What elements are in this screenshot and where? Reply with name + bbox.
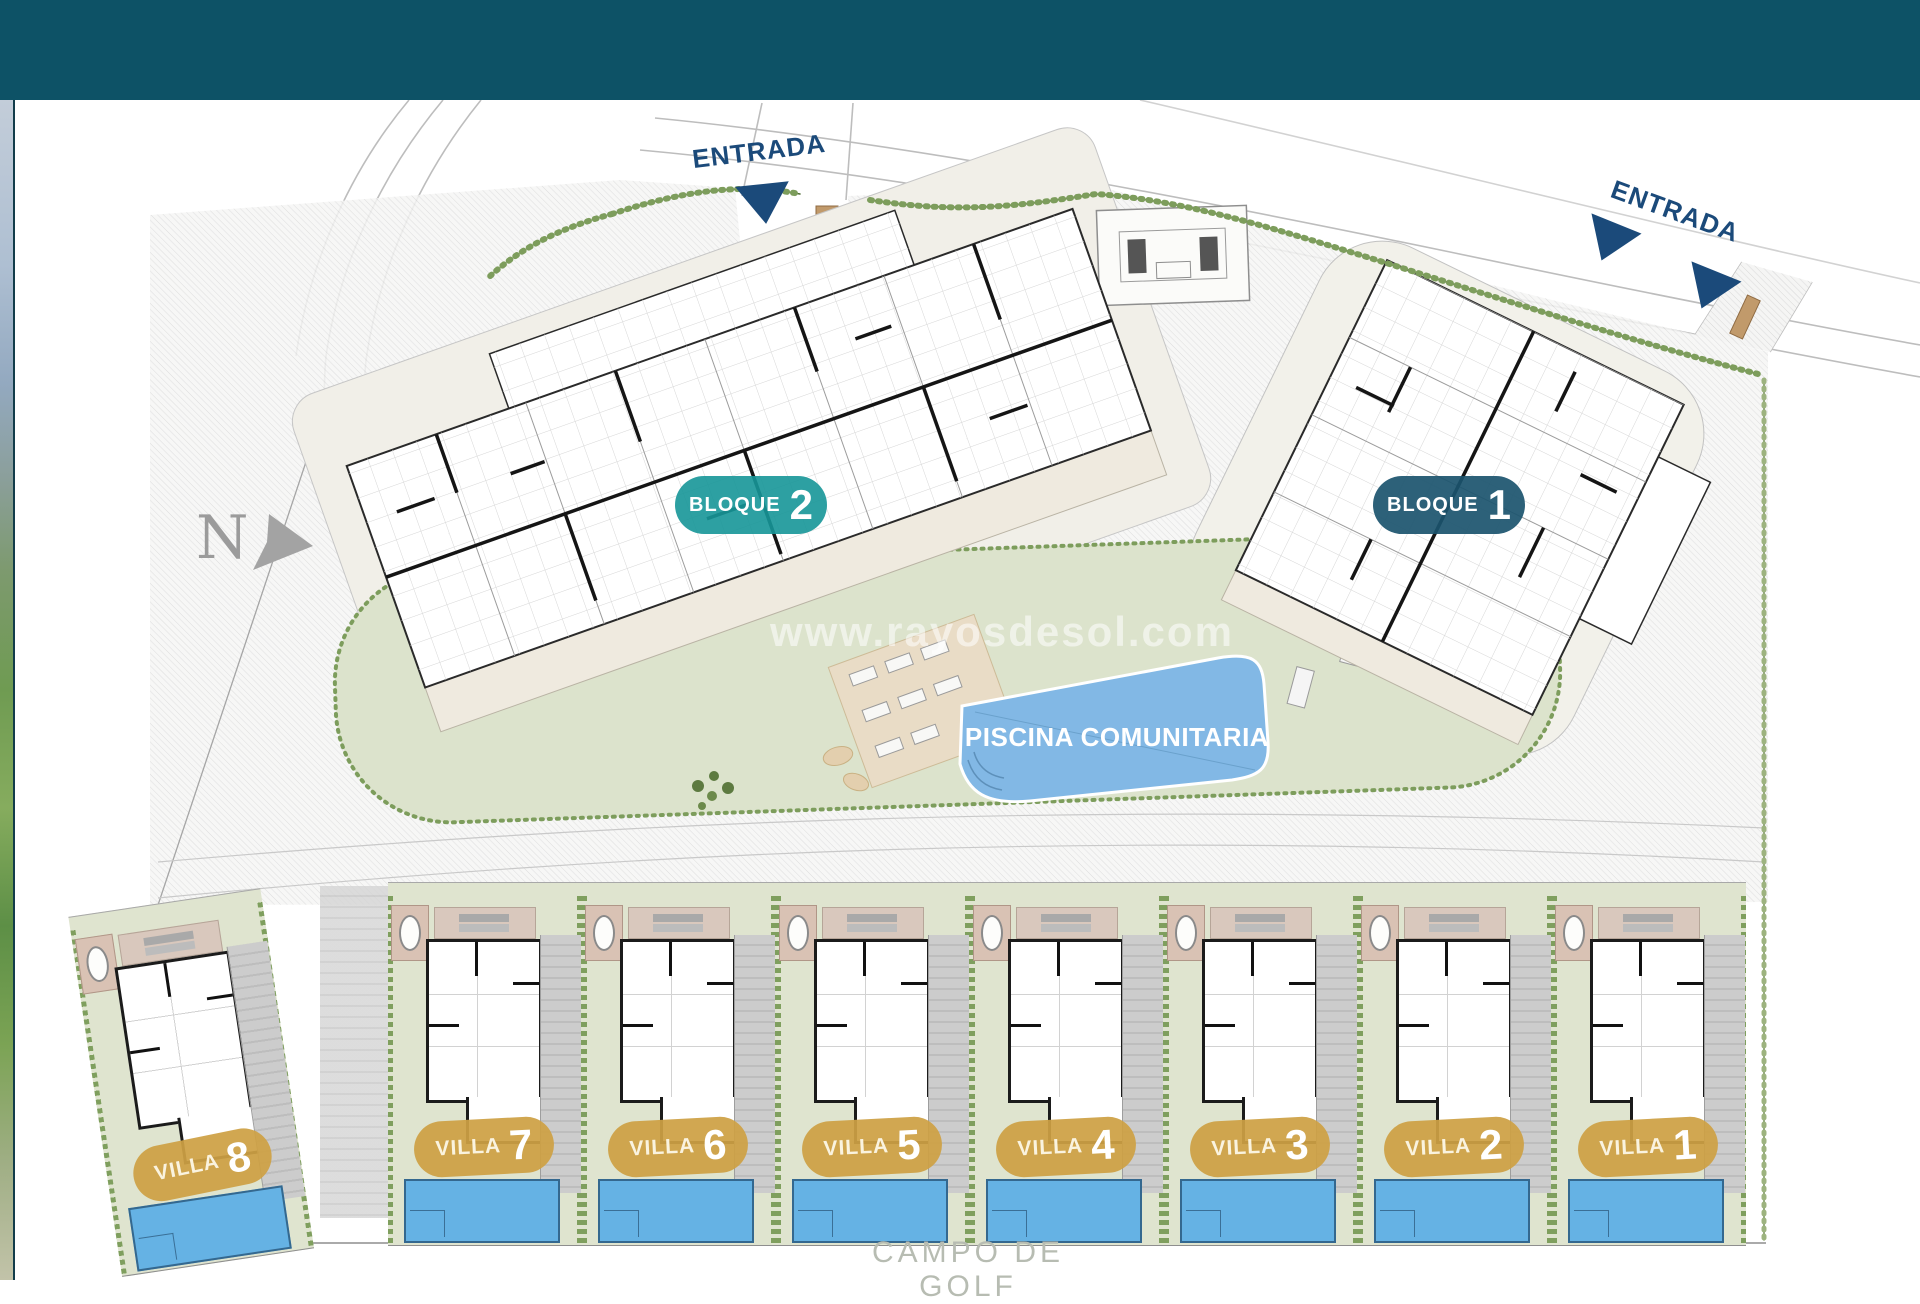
- tub-icon: [1175, 915, 1197, 951]
- bloque-1-badge[interactable]: BLOQUE 1: [1373, 476, 1525, 534]
- villa-floorplan: [426, 939, 542, 1103]
- watermark: www.rayosdesol.com: [770, 608, 1234, 656]
- wall: [669, 942, 672, 976]
- villa-pool: [598, 1179, 754, 1243]
- villa-badge-number: 7: [508, 1123, 534, 1166]
- villa-badge-number: 4: [1090, 1123, 1116, 1166]
- tub-icon: [399, 915, 421, 951]
- villa-terrace-pad: [1167, 905, 1205, 961]
- wall: [1011, 1024, 1041, 1027]
- villa-badge-number: 3: [1284, 1123, 1310, 1166]
- bloque-badge-label: BLOQUE: [1387, 494, 1479, 517]
- villa-badge[interactable]: VILLA 4: [995, 1115, 1138, 1178]
- tub-icon: [1369, 915, 1391, 951]
- villa-badge-number: 6: [702, 1123, 728, 1166]
- villa-terrace-pad: [973, 905, 1011, 961]
- villa-terrace: [1210, 907, 1312, 939]
- wall: [623, 1024, 653, 1027]
- bloque-2-badge[interactable]: BLOQUE 2: [675, 476, 827, 534]
- pool-steps: [1186, 1210, 1221, 1237]
- villa-pool: [792, 1179, 948, 1243]
- villa-badge[interactable]: VILLA 1: [1577, 1115, 1720, 1178]
- tub-icon: [84, 945, 111, 984]
- villa-badge[interactable]: VILLA 6: [607, 1115, 750, 1178]
- wall: [1677, 982, 1703, 985]
- villa-terrace: [434, 907, 536, 939]
- villa-badge-number: 1: [1672, 1123, 1698, 1166]
- villa-pool: [1180, 1179, 1336, 1243]
- villa-badge-label: VILLA: [153, 1150, 222, 1187]
- pool-steps: [1380, 1210, 1415, 1237]
- terrace-furniture: [1429, 914, 1479, 922]
- wall: [1445, 942, 1448, 976]
- villa-badge[interactable]: VILLA 2: [1383, 1115, 1526, 1178]
- bloque-badge-number: 1: [1488, 484, 1511, 526]
- villa-badge-label: VILLA: [1405, 1134, 1472, 1161]
- villa-floorplan: [1202, 939, 1318, 1103]
- villa-plot-7: VILLA 7: [388, 882, 582, 1246]
- villa-floorplan: [1590, 939, 1706, 1103]
- villa-floorplan: [620, 939, 736, 1103]
- tub-icon: [981, 915, 1003, 951]
- wall: [130, 1047, 160, 1054]
- villa-terrace: [628, 907, 730, 939]
- entrance-arrow-icon: [735, 181, 793, 226]
- pool-steps: [410, 1210, 445, 1237]
- wall: [475, 942, 478, 976]
- site-plan-page: VILLA 8 VILLA 7 VILLA 6: [0, 0, 1920, 1280]
- villa-terrace-pad: [1361, 905, 1399, 961]
- villa-plot-2: VILLA 2: [1358, 882, 1552, 1246]
- pool-steps: [604, 1210, 639, 1237]
- wall: [817, 1024, 847, 1027]
- terrace-furniture: [1235, 914, 1285, 922]
- villa-badge-label: VILLA: [629, 1134, 696, 1161]
- wall: [863, 942, 866, 976]
- terrace-furniture: [847, 914, 897, 922]
- wall: [1399, 1024, 1429, 1027]
- villa-plot-1: VILLA 1: [1552, 882, 1746, 1246]
- villa-badge-label: VILLA: [823, 1134, 890, 1161]
- villa-badge-number: 2: [1478, 1123, 1504, 1166]
- terrace-furniture: [1623, 914, 1673, 922]
- villa-pool: [986, 1179, 1142, 1243]
- wall: [1593, 1024, 1623, 1027]
- wall: [1483, 982, 1509, 985]
- wall: [1095, 982, 1121, 985]
- shared-driveway: [320, 886, 390, 1218]
- villa-pool: [1568, 1179, 1724, 1243]
- golf-photo-strip: [0, 100, 15, 1280]
- tub-icon: [787, 915, 809, 951]
- villa-plot-4: VILLA 4: [970, 882, 1164, 1246]
- tub-icon: [1563, 915, 1585, 951]
- wall: [707, 982, 733, 985]
- wall: [163, 963, 171, 997]
- wall: [207, 993, 233, 1000]
- villa-terrace: [822, 907, 924, 939]
- entrance-plaza: [1096, 205, 1249, 305]
- wall: [429, 1024, 459, 1027]
- villa-terrace-pad: [75, 934, 121, 995]
- header-bar: [0, 0, 1920, 100]
- pool-steps: [139, 1233, 178, 1265]
- wall: [1289, 982, 1315, 985]
- golf-course-label: CAMPO DE GOLF: [823, 1236, 1113, 1304]
- villa-floorplan: [1396, 939, 1512, 1103]
- north-indicator: N: [196, 508, 323, 576]
- north-arrow-icon: [251, 512, 323, 576]
- villa-floorplan: [814, 939, 930, 1103]
- terrace-furniture: [143, 931, 194, 946]
- villa-badge[interactable]: VILLA 7: [413, 1115, 556, 1178]
- wall: [1205, 1024, 1235, 1027]
- villa-pool: [404, 1179, 560, 1243]
- villa-badge-label: VILLA: [1599, 1134, 1666, 1161]
- villa-badge[interactable]: VILLA 3: [1189, 1115, 1332, 1178]
- villa-terrace-pad: [585, 905, 623, 961]
- villa-plot-6: VILLA 6: [582, 882, 776, 1246]
- villa-terrace-pad: [779, 905, 817, 961]
- pool-steps: [798, 1210, 833, 1237]
- north-label: N: [196, 508, 249, 568]
- wall: [901, 982, 927, 985]
- wall: [1639, 942, 1642, 976]
- villa-terrace: [1598, 907, 1700, 939]
- pool-steps: [992, 1210, 1027, 1237]
- villa-terrace-pad: [391, 905, 429, 961]
- bloque-badge-number: 2: [790, 484, 813, 526]
- villa-badge-label: VILLA: [435, 1134, 502, 1161]
- villa-badge-number: 5: [896, 1123, 922, 1166]
- tub-icon: [593, 915, 615, 951]
- terrace-furniture: [653, 914, 703, 922]
- communal-pool-label: PISCINA COMUNITARIA: [952, 722, 1282, 753]
- terrace-furniture: [1041, 914, 1091, 922]
- villa-plot-3: VILLA 3: [1164, 882, 1358, 1246]
- villa-badge-label: VILLA: [1017, 1134, 1084, 1161]
- villa-pool: [1374, 1179, 1530, 1243]
- villa-plot-5: VILLA 5: [776, 882, 970, 1246]
- bloque-badge-label: BLOQUE: [689, 494, 781, 517]
- pool-steps: [1574, 1210, 1609, 1237]
- villa-badge-label: VILLA: [1211, 1134, 1278, 1161]
- villa-terrace: [1016, 907, 1118, 939]
- villa-terrace-pad: [1555, 905, 1593, 961]
- villa-badge-number: 8: [223, 1135, 254, 1181]
- wall: [1251, 942, 1254, 976]
- villa-terrace: [1404, 907, 1506, 939]
- villa-badge[interactable]: VILLA 5: [801, 1115, 944, 1178]
- wall: [1057, 942, 1060, 976]
- wall: [513, 982, 539, 985]
- villa-floorplan: [1008, 939, 1124, 1103]
- terrace-furniture: [459, 914, 509, 922]
